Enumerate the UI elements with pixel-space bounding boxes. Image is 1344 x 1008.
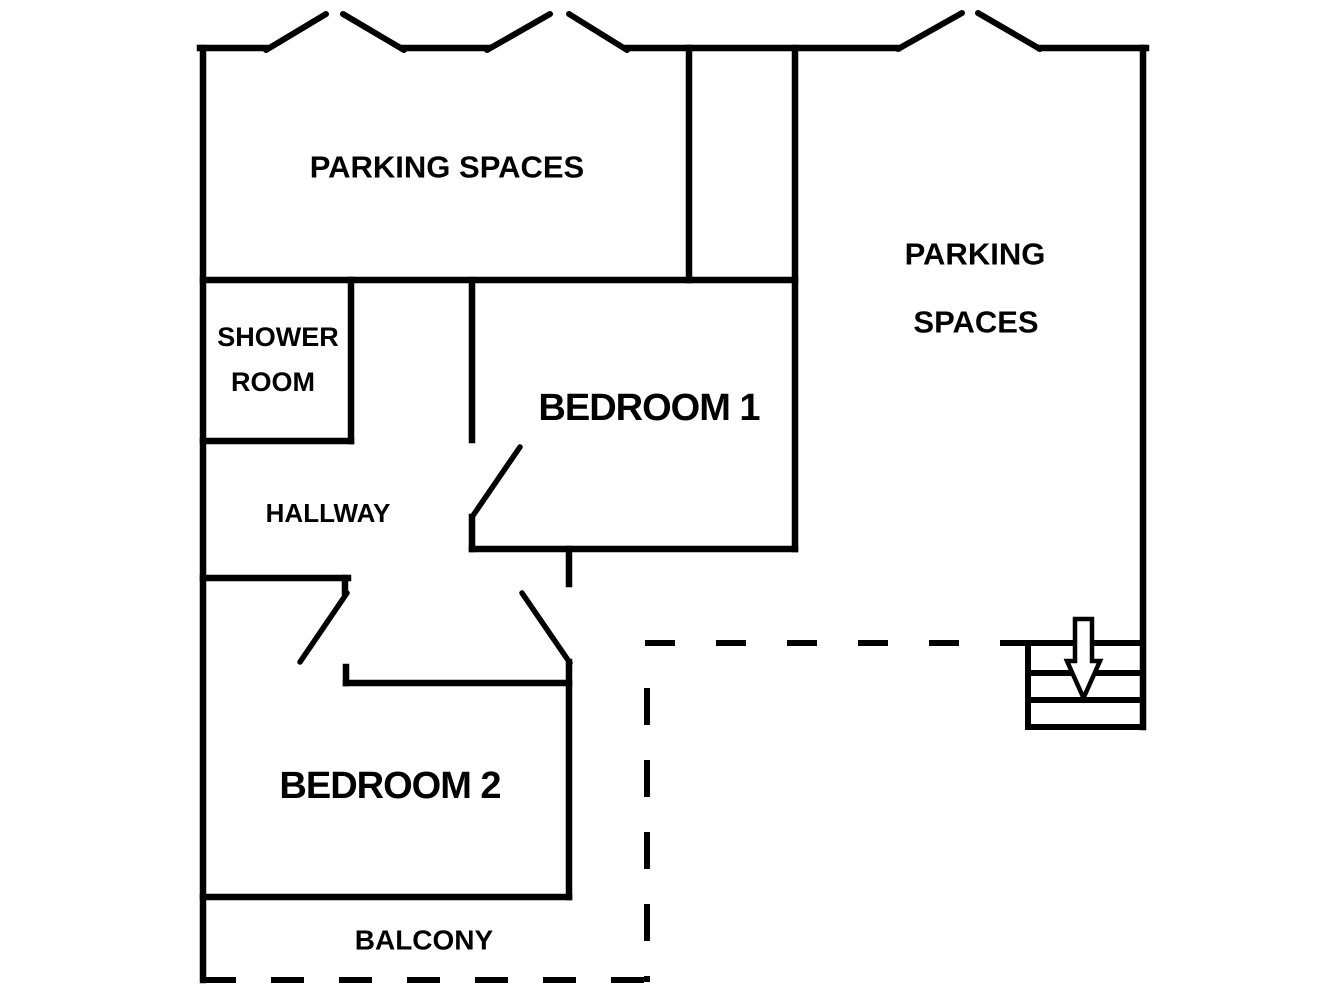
label-parking-right-line1: PARKING xyxy=(905,237,1046,272)
label-parking-spaces-top: PARKING SPACES xyxy=(310,150,584,185)
label-bedroom-1: BEDROOM 1 xyxy=(538,387,760,429)
floor-plan-page: PARKING SPACES PARKING SPACES SHOWER ROO… xyxy=(0,0,1344,1008)
door-swing-line xyxy=(522,593,570,663)
floor-plan-svg: PARKING SPACES PARKING SPACES SHOWER ROO… xyxy=(0,0,1344,1008)
label-shower-room-line1: SHOWER xyxy=(217,322,339,352)
label-bedroom-2: BEDROOM 2 xyxy=(279,765,500,807)
door-swings xyxy=(300,447,570,663)
entrance-opening-mark xyxy=(898,13,962,49)
label-balcony: BALCONY xyxy=(355,925,494,956)
label-parking-right-line2: SPACES xyxy=(913,305,1038,340)
entrance-opening-mark xyxy=(487,14,550,50)
entrance-opening-mark xyxy=(343,14,404,50)
stairs-down-arrow-icon xyxy=(1067,619,1100,698)
entrance-marks xyxy=(266,13,1040,50)
entrance-opening-mark xyxy=(266,14,326,50)
label-hallway: HALLWAY xyxy=(266,498,391,528)
entrance-opening-mark xyxy=(978,13,1040,49)
dashed-boundaries xyxy=(203,643,1028,982)
label-shower-room-line2: ROOM xyxy=(231,367,315,397)
door-swing-line xyxy=(472,447,520,517)
entrance-opening-mark xyxy=(569,14,627,50)
room-labels: PARKING SPACES PARKING SPACES SHOWER ROO… xyxy=(217,150,1045,956)
door-swing-line xyxy=(300,593,347,662)
